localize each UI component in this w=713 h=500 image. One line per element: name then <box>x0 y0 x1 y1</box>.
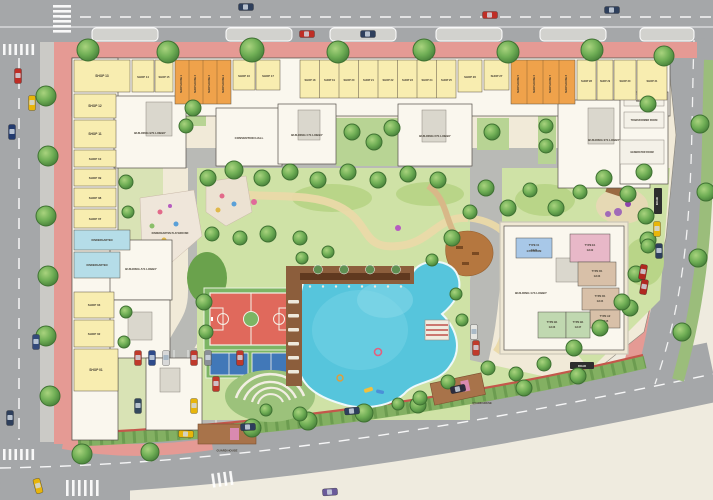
shop-label: SHOP 27 <box>491 74 503 78</box>
car-icon <box>361 31 376 38</box>
tree-icon <box>697 183 713 201</box>
unit-type-label: TYPE 01 <box>529 243 540 247</box>
tree-icon <box>484 124 500 140</box>
tree-icon <box>260 226 276 242</box>
shop-label: SHOP 19 <box>324 78 335 82</box>
car-icon <box>322 488 337 496</box>
tree-icon <box>570 368 586 384</box>
room-label: KINDERGARTEN <box>87 263 108 267</box>
parasol-icon <box>392 265 401 274</box>
pool-cabana <box>425 320 449 340</box>
tree-icon <box>179 119 193 133</box>
shop-label: SHOP 22 <box>383 78 394 82</box>
tree-icon <box>456 314 468 326</box>
tree-icon <box>293 407 307 421</box>
pool-bar <box>300 273 410 280</box>
tree-icon <box>72 444 92 464</box>
car-icon <box>15 69 22 84</box>
parasol-icon <box>366 265 375 274</box>
tree-icon <box>310 172 326 188</box>
tree-icon <box>38 266 58 286</box>
car-icon <box>656 244 663 259</box>
lobby-label: BUILDING C'S LOBBY <box>291 133 323 137</box>
shop-label: SHOP 23 <box>402 78 413 82</box>
lobby-label: BUILDING G'S LOBBY <box>515 291 547 295</box>
shop-label: SHOP 25 <box>441 78 452 82</box>
unit-type-label: TYPE E1 <box>585 243 596 247</box>
shop-label: SHOP 11 <box>88 132 101 136</box>
road-badge-label: ROAD <box>578 364 586 368</box>
tree-icon <box>636 164 652 180</box>
shop-label: SHOP 26 <box>464 75 476 79</box>
tree-icon <box>120 306 132 318</box>
unit-type-label: TYPE B1 <box>573 320 584 324</box>
car-icon <box>473 341 480 356</box>
tree-icon <box>157 41 179 63</box>
tree-icon <box>293 231 307 245</box>
shop-label: SHOP 03 <box>88 303 101 307</box>
tree-icon <box>118 336 130 348</box>
lobby-label: BUILDING E'S LOBBY <box>588 138 619 142</box>
tree-icon <box>523 183 537 197</box>
shop-label: SHOP 10 <box>89 157 102 161</box>
shop-label: SHOP 12 <box>88 104 102 108</box>
room-label: GENERATOR ROOM <box>630 151 653 154</box>
tree-icon <box>322 246 334 258</box>
shop-label: SHOP 14 <box>137 75 149 79</box>
tree-icon <box>400 166 416 182</box>
car-icon <box>135 399 142 414</box>
car-icon <box>605 7 620 14</box>
tree-icon <box>450 288 462 300</box>
car-icon <box>483 12 498 19</box>
shop-house-label: SHOP HOUSE 7 <box>549 74 552 93</box>
tree-icon <box>500 200 516 216</box>
tree-icon <box>426 254 438 266</box>
tree-icon <box>296 252 308 264</box>
car-icon <box>178 430 193 438</box>
tree-icon <box>444 230 460 246</box>
tree-icon <box>38 146 58 166</box>
tree-icon <box>430 172 446 188</box>
unit-code-label: G2.04 <box>597 300 604 303</box>
shop-label: SHOP 28 <box>581 79 592 83</box>
tree-icon <box>614 294 630 310</box>
tree-icon <box>413 39 435 61</box>
tree-icon <box>463 205 477 219</box>
guard-house-south-label: GUARD HOUSE <box>217 449 238 453</box>
shop-label: SHOP 30 <box>620 79 631 83</box>
tree-icon <box>516 380 532 396</box>
tree-icon <box>119 175 133 189</box>
tree-icon <box>413 391 427 405</box>
tree-icon <box>673 323 691 341</box>
unit-code-label: G2.06 <box>549 326 556 329</box>
tree-icon <box>509 367 523 381</box>
unit-code-label: G2.01 <box>531 249 538 252</box>
tree-icon <box>573 185 587 199</box>
tree-icon <box>200 170 216 186</box>
shop-label: SHOP 18 <box>305 78 316 82</box>
parasol-icon <box>340 265 349 274</box>
room-label: KINDERGARTEN <box>92 238 113 242</box>
car-icon <box>135 351 142 366</box>
tree-icon <box>40 386 60 406</box>
tree-icon <box>205 227 219 241</box>
shop-house-label: SHOP HOUSE 2 <box>194 74 197 93</box>
car-icon <box>344 407 360 415</box>
car-icon <box>191 399 198 414</box>
tree-icon <box>36 86 56 106</box>
site-plan: KINDERGARTEN PLAYGROUND <box>0 0 713 500</box>
tree-icon <box>539 119 553 133</box>
site-plan-drawing: KINDERGARTEN PLAYGROUND <box>0 0 713 500</box>
tree-icon <box>641 239 655 253</box>
road-badge-label: ROAD <box>655 197 659 205</box>
tree-icon <box>384 120 400 136</box>
lobby-label: BUILDING A'S LOBBY <box>125 267 156 271</box>
tree-icon <box>592 320 608 336</box>
tree-icon <box>282 164 298 180</box>
shop-label: SHOP 13 <box>95 74 109 78</box>
tree-icon <box>370 172 386 188</box>
car-icon <box>7 411 14 426</box>
shop-label: SHOP 09 <box>89 176 102 180</box>
shop-label: SHOP 17 <box>262 74 274 78</box>
lobby-label: BUILDING D'S LOBBY <box>419 134 451 138</box>
tree-icon <box>225 161 243 179</box>
shop-house-label: SHOP HOUSE 3 <box>208 74 211 93</box>
car-icon <box>149 351 156 366</box>
shop-label: SHOP 15 <box>159 75 170 79</box>
room-label: TRANSFORMER ROOM <box>631 119 658 122</box>
tree-icon <box>36 206 56 226</box>
car-icon <box>33 335 40 350</box>
tree-icon <box>566 340 582 356</box>
tree-icon <box>620 186 636 202</box>
unit-type-label: TYPE D1 <box>595 294 606 298</box>
unit-type-label: TYPE A2 <box>600 314 611 318</box>
tree-icon <box>539 139 553 153</box>
shop-house-label: SHOP HOUSE 5 <box>517 74 520 93</box>
guard-booth <box>230 428 239 440</box>
shop-label: SHOP 20 <box>344 78 355 82</box>
shop-label: SHOP 29 <box>600 80 611 83</box>
tree-icon <box>122 206 134 218</box>
car-icon <box>213 377 220 392</box>
tree-icon <box>199 325 213 339</box>
tree-icon <box>240 38 264 62</box>
shop-label: SHOP 24 <box>422 78 433 82</box>
tree-icon <box>254 170 270 186</box>
tree-icon <box>596 170 612 186</box>
tree-icon <box>654 46 674 66</box>
parasol-icon <box>314 265 323 274</box>
basketball-court <box>204 288 298 350</box>
car-icon <box>29 96 36 111</box>
car-icon <box>191 351 198 366</box>
shop-house-label: SHOP HOUSE 6 <box>533 74 536 93</box>
tree-icon <box>344 124 360 140</box>
tree-icon <box>548 200 564 216</box>
car-icon <box>240 423 255 431</box>
shop-house-label: SHOP HOUSE 4 <box>222 74 225 93</box>
tree-icon <box>537 357 551 371</box>
tree-icon <box>481 361 495 375</box>
shop-label: SHOP 07 <box>89 217 102 221</box>
shop-label: SHOP 01 <box>89 368 103 372</box>
shop-label: SHOP 21 <box>363 78 374 82</box>
tree-icon <box>691 115 709 133</box>
unit-type-label: TYPE D1 <box>592 269 603 273</box>
tree-icon <box>327 41 349 63</box>
shop-house-label: SHOP HOUSE 8 <box>565 74 568 93</box>
car-icon <box>239 4 254 11</box>
tree-icon <box>340 164 356 180</box>
tree-icon <box>233 231 247 245</box>
car-icon <box>237 351 244 366</box>
tree-icon <box>478 180 494 196</box>
car-icon <box>205 351 212 366</box>
car-icon <box>9 125 16 140</box>
kindergarten-playground-label: KINDERGARTEN PLAYGROUND <box>152 232 189 235</box>
unit-code-label: G2.03 <box>594 275 601 278</box>
tree-icon <box>185 100 201 116</box>
unit-type-label: TYPE B1 <box>547 320 558 324</box>
tree-icon <box>497 41 519 63</box>
unit-code-label: G2.02 <box>587 249 594 252</box>
car-icon <box>300 31 315 38</box>
tree-icon <box>689 249 707 267</box>
tree-icon <box>366 134 382 150</box>
shop-label: SHOP 31 <box>647 79 658 83</box>
lobby-label: BUILDING B'S LOBBY <box>134 131 166 135</box>
shop-label: SHOP 16 <box>238 74 250 78</box>
car-icon <box>654 222 661 237</box>
guard-house-east-label: GUARD HOUSE <box>472 401 492 405</box>
tree-icon <box>638 208 654 224</box>
shop-label: SHOP 02 <box>88 332 101 336</box>
tree-icon <box>260 404 272 416</box>
unit-code-label: G2.07 <box>575 326 582 329</box>
tree-icon <box>581 39 603 61</box>
car-icon <box>471 325 478 340</box>
shop-house-label: SHOP HOUSE 1 <box>180 74 183 93</box>
shop-label: SHOP 08 <box>89 196 102 200</box>
tree-icon <box>77 39 99 61</box>
tree-icon <box>392 398 404 410</box>
room-label: CONVENTION HALL <box>235 136 264 140</box>
tree-icon <box>141 443 159 461</box>
tree-icon <box>196 294 212 310</box>
tree-icon <box>640 96 656 112</box>
car-icon <box>163 351 170 366</box>
